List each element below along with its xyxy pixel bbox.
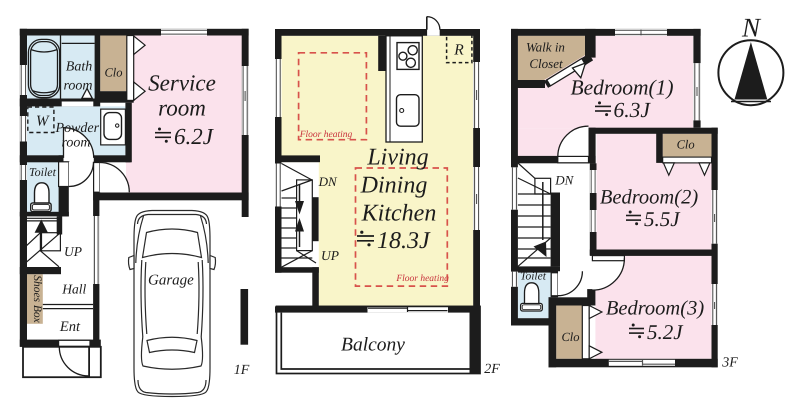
svg-text:Floor heating: Floor heating xyxy=(299,130,353,140)
svg-text:Shoes Box: Shoes Box xyxy=(31,275,43,323)
svg-text:UP: UP xyxy=(321,248,339,263)
svg-text:5.2J: 5.2J xyxy=(647,320,684,344)
svg-text:R: R xyxy=(453,42,464,59)
svg-text:Walk in: Walk in xyxy=(526,40,565,55)
svg-text:room: room xyxy=(158,96,206,121)
svg-text:Toilet: Toilet xyxy=(520,270,547,282)
svg-text:Garage: Garage xyxy=(148,273,194,289)
svg-text:Bath: Bath xyxy=(66,60,92,75)
svg-text:Closet: Closet xyxy=(529,56,563,71)
svg-text:room: room xyxy=(61,136,90,151)
svg-text:Toilet: Toilet xyxy=(29,165,57,179)
svg-text:1F: 1F xyxy=(234,363,250,378)
svg-text:Clo: Clo xyxy=(677,138,695,152)
svg-text:Clo: Clo xyxy=(104,66,122,80)
svg-text:DN: DN xyxy=(554,173,574,188)
svg-text:Kitchen: Kitchen xyxy=(361,201,437,227)
svg-text:UP: UP xyxy=(64,244,82,259)
svg-text:Floor heating: Floor heating xyxy=(395,274,449,284)
svg-text:Ent: Ent xyxy=(59,319,81,335)
svg-text:Clo: Clo xyxy=(561,330,579,344)
svg-text:Bedroom(3): Bedroom(3) xyxy=(606,298,704,320)
svg-text:6.2J: 6.2J xyxy=(174,124,215,149)
svg-text:room: room xyxy=(63,79,92,94)
svg-text:6.3J: 6.3J xyxy=(614,98,652,122)
svg-text:W: W xyxy=(36,114,50,130)
svg-text:3F: 3F xyxy=(721,356,738,371)
svg-text:Dining: Dining xyxy=(360,173,428,199)
svg-text:18.3J: 18.3J xyxy=(377,228,431,254)
svg-text:Bedroom(1): Bedroom(1) xyxy=(570,76,673,100)
svg-text:Living: Living xyxy=(366,145,428,171)
svg-text:Service: Service xyxy=(148,71,216,96)
svg-text:DN: DN xyxy=(318,174,338,189)
svg-text:Powder: Powder xyxy=(55,121,100,136)
svg-text:Hall: Hall xyxy=(61,282,86,297)
svg-text:N: N xyxy=(741,13,762,43)
svg-text:5.5J: 5.5J xyxy=(644,207,681,231)
svg-text:2F: 2F xyxy=(484,362,500,377)
svg-text:Balcony: Balcony xyxy=(341,335,405,356)
svg-text:Bedroom(2): Bedroom(2) xyxy=(600,187,698,209)
